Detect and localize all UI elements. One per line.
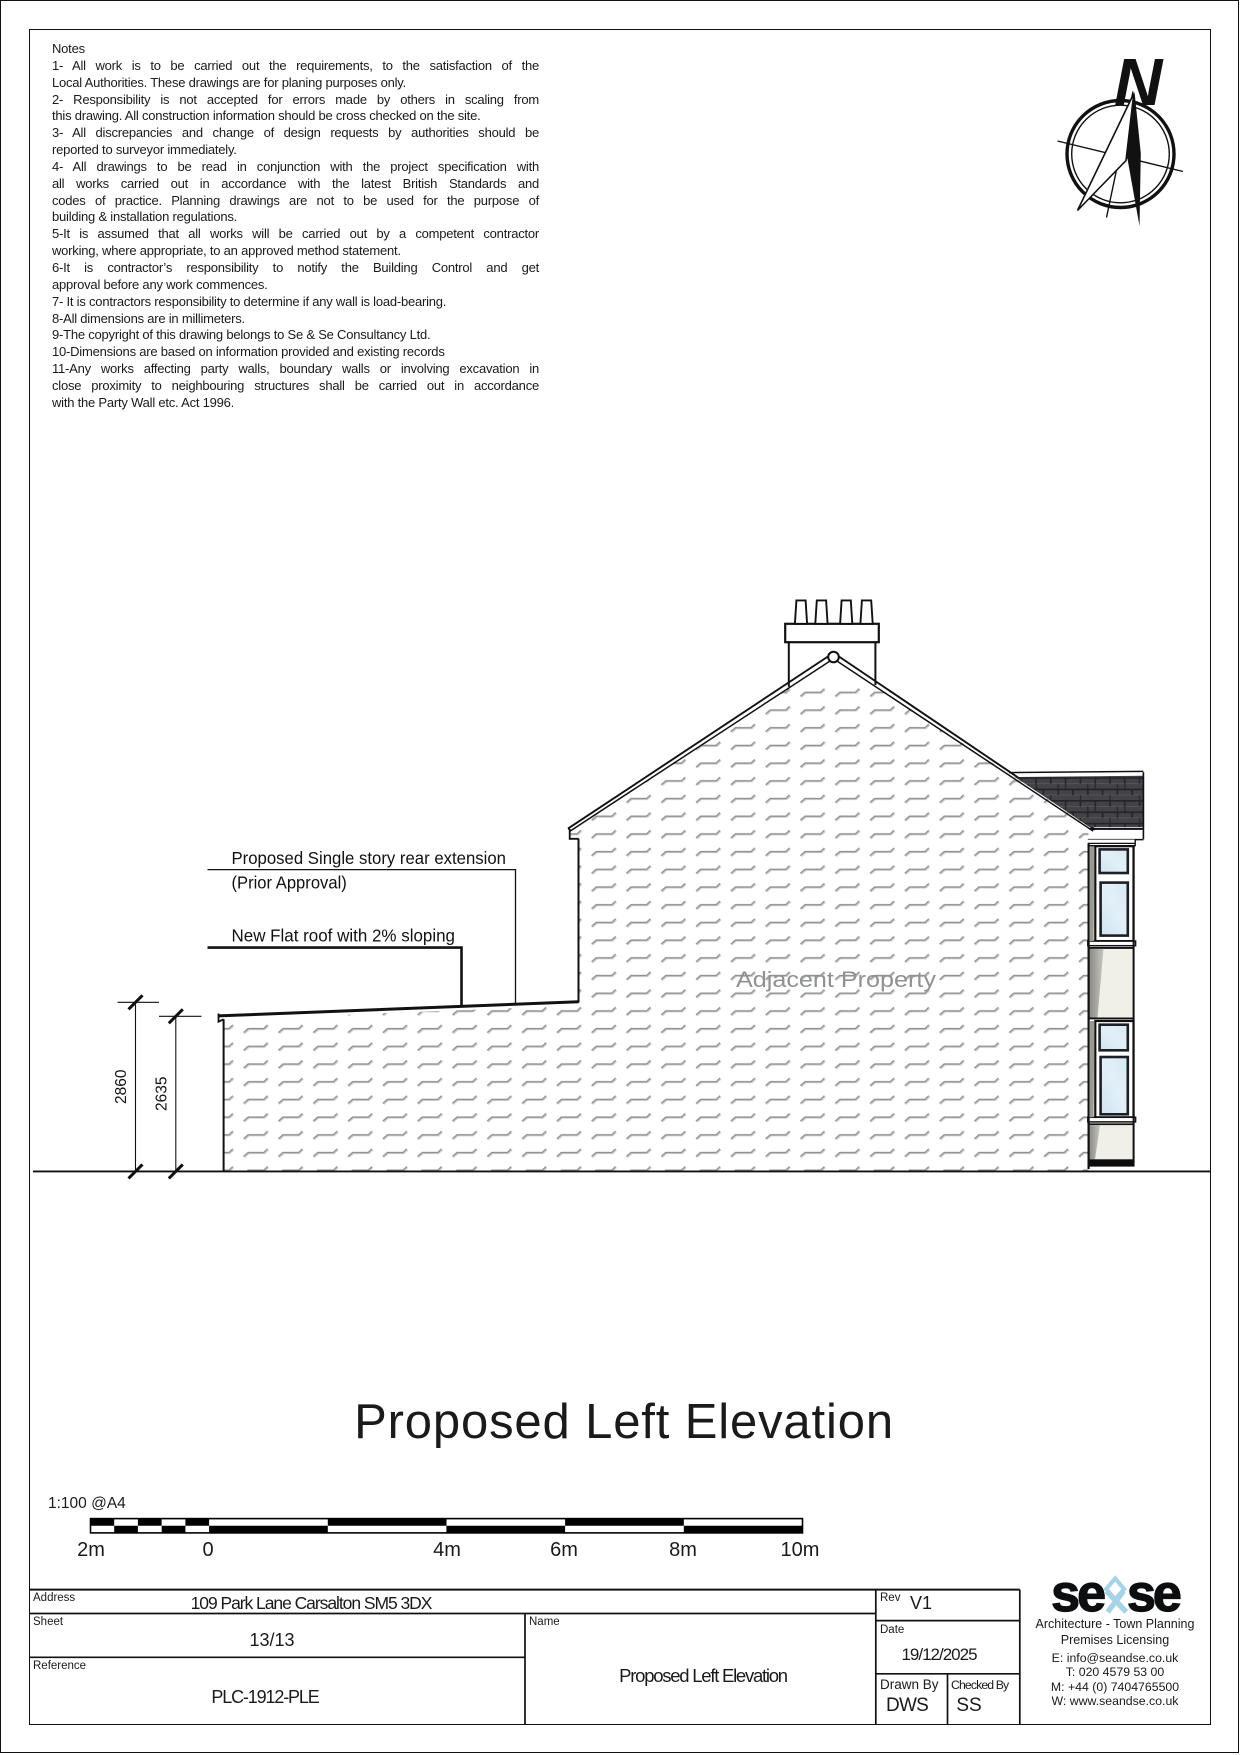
svg-text:New Flat roof with 2% sloping: New Flat roof with 2% sloping <box>232 926 456 946</box>
svg-text:2860: 2860 <box>113 1069 130 1104</box>
svg-text:2635: 2635 <box>154 1077 171 1111</box>
svg-text:Adjacent Property: Adjacent Property <box>736 967 937 992</box>
svg-text:(Prior Approval): (Prior Approval) <box>232 873 347 893</box>
svg-text:Proposed Single story rear ext: Proposed Single story rear extension <box>232 848 507 868</box>
